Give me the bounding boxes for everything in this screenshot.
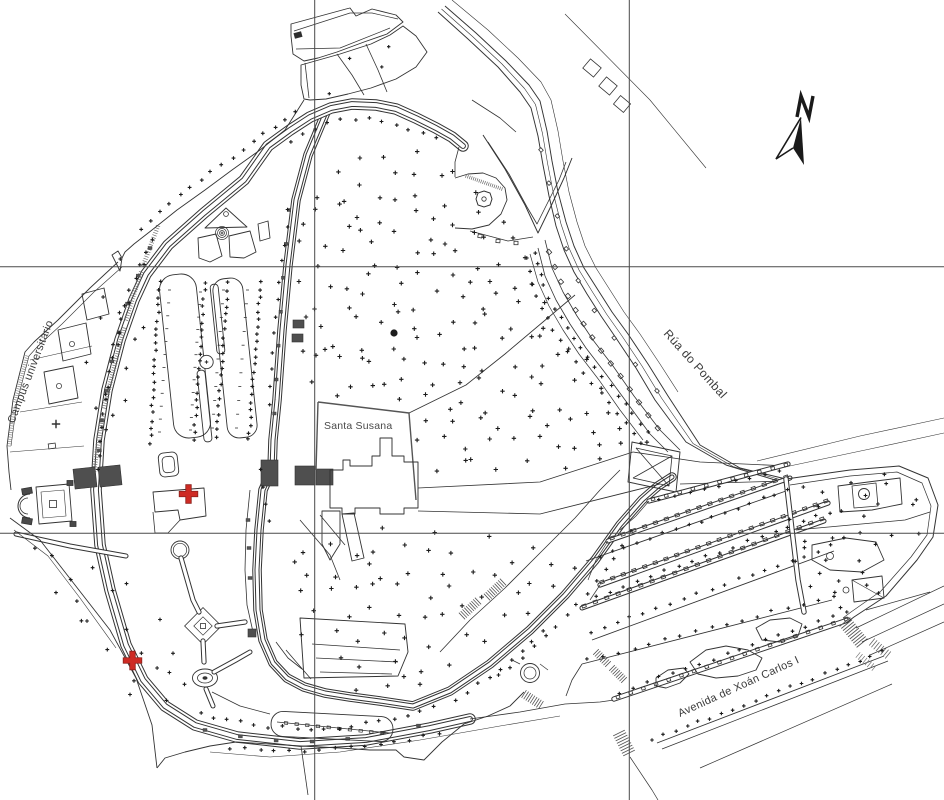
svg-text:Santa Susana: Santa Susana — [324, 420, 392, 432]
